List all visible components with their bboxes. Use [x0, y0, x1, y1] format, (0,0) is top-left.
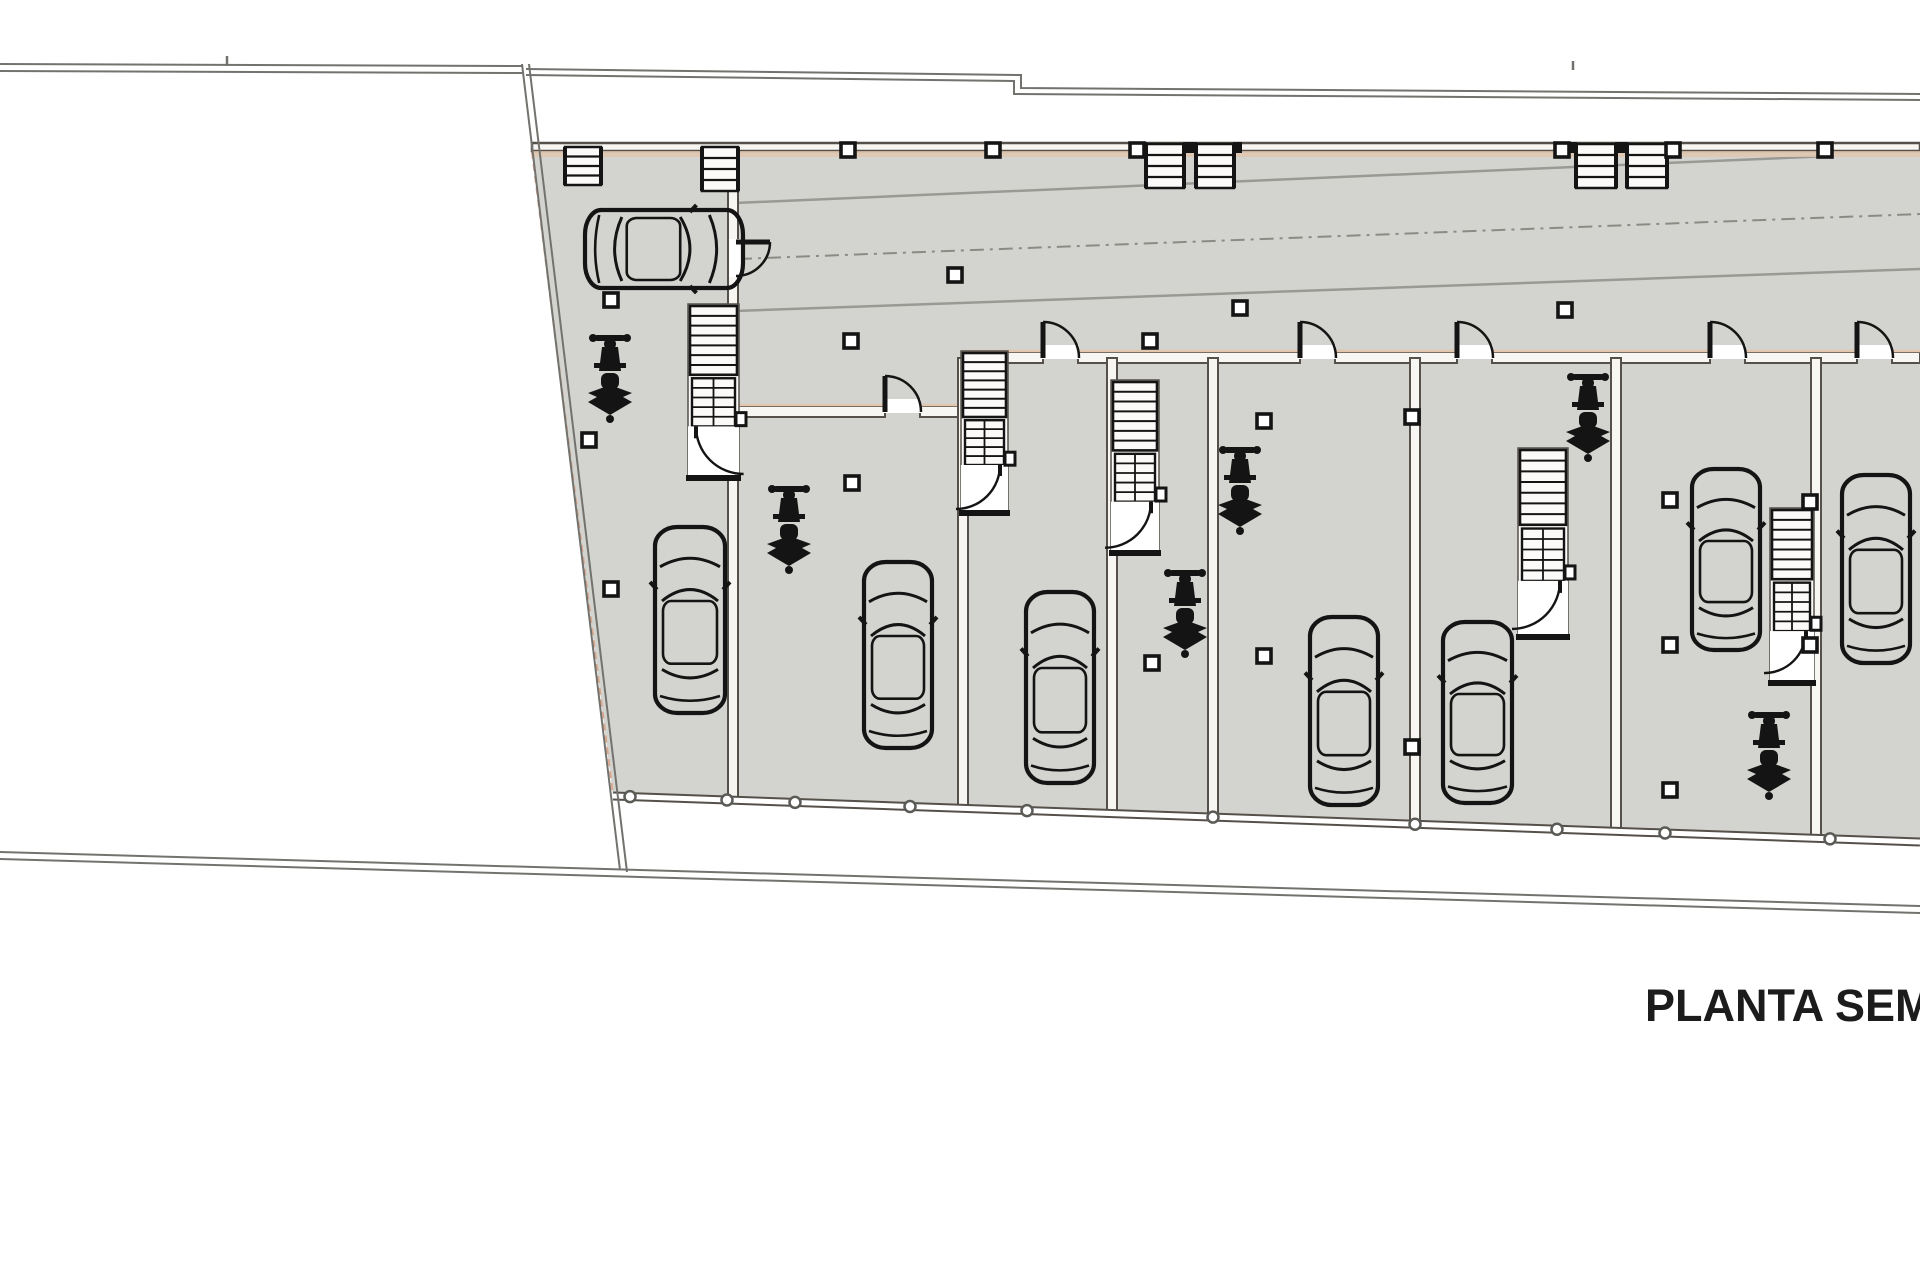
wall-node — [790, 797, 801, 808]
stair-symbol — [956, 351, 1015, 516]
column-marker — [845, 476, 859, 490]
stair-ladder — [1568, 142, 1624, 188]
plan-title: PLANTA SEMIS — [1645, 980, 1920, 1032]
wall-node — [1660, 828, 1671, 839]
column-marker — [1818, 143, 1832, 157]
column-marker — [1257, 414, 1271, 428]
wall-node — [1208, 812, 1219, 823]
unit-divider-wall — [1208, 358, 1218, 817]
stair-symbol — [1512, 448, 1575, 640]
boundary-top-right-inner — [526, 75, 1920, 100]
column-marker — [986, 143, 1000, 157]
unit-top-wall — [1335, 352, 1457, 363]
column-marker — [582, 433, 596, 447]
stair-symbol — [1105, 380, 1166, 556]
column-marker — [1558, 303, 1572, 317]
unit-top-wall — [1492, 352, 1710, 363]
column-marker — [604, 293, 618, 307]
column-marker — [844, 334, 858, 348]
column-marker — [604, 582, 618, 596]
column-marker — [1803, 638, 1817, 652]
wall-node — [1022, 805, 1033, 816]
boundary-top-left-inner — [0, 71, 524, 73]
boundary-top-left-outer — [0, 64, 522, 66]
column-marker — [1663, 493, 1677, 507]
wall-node — [1552, 824, 1563, 835]
column-marker — [1663, 638, 1677, 652]
column-marker — [1555, 143, 1569, 157]
column-marker — [1803, 495, 1817, 509]
wall-node — [625, 791, 636, 802]
wall-node — [1825, 833, 1836, 844]
stair-ladder — [702, 147, 738, 191]
column-marker — [1666, 143, 1680, 157]
boundary-bottom-inner — [0, 859, 1920, 913]
column-marker — [948, 268, 962, 282]
column-marker — [1130, 143, 1144, 157]
stair-ladder — [565, 147, 601, 185]
floor-plan-drawing: PLANTA SEMIS — [0, 0, 1920, 1280]
unit-divider-wall — [1611, 358, 1621, 831]
unit2-top-wall — [920, 406, 963, 417]
wall-node — [722, 795, 733, 806]
column-marker — [1663, 783, 1677, 797]
column-marker — [1233, 301, 1247, 315]
column-marker — [1143, 334, 1157, 348]
column-marker — [1405, 740, 1419, 754]
stair-symbol — [1764, 508, 1821, 686]
unit-top-wall — [1892, 352, 1920, 363]
boundary-top-right-outer — [526, 69, 1920, 94]
wall-node — [905, 801, 916, 812]
column-marker — [841, 143, 855, 157]
boundary-bottom-outer — [0, 852, 1920, 906]
stair-symbol — [686, 304, 746, 481]
unit-top-wall — [1745, 352, 1857, 363]
stair-ladder — [1188, 142, 1242, 188]
column-marker — [1257, 649, 1271, 663]
floor-plan-svg — [0, 0, 1920, 1280]
column-marker — [1145, 656, 1159, 670]
wall-node — [1410, 819, 1421, 830]
unit2-top-wall — [733, 406, 885, 417]
column-marker — [1405, 410, 1419, 424]
stair-ladder — [1138, 142, 1192, 188]
